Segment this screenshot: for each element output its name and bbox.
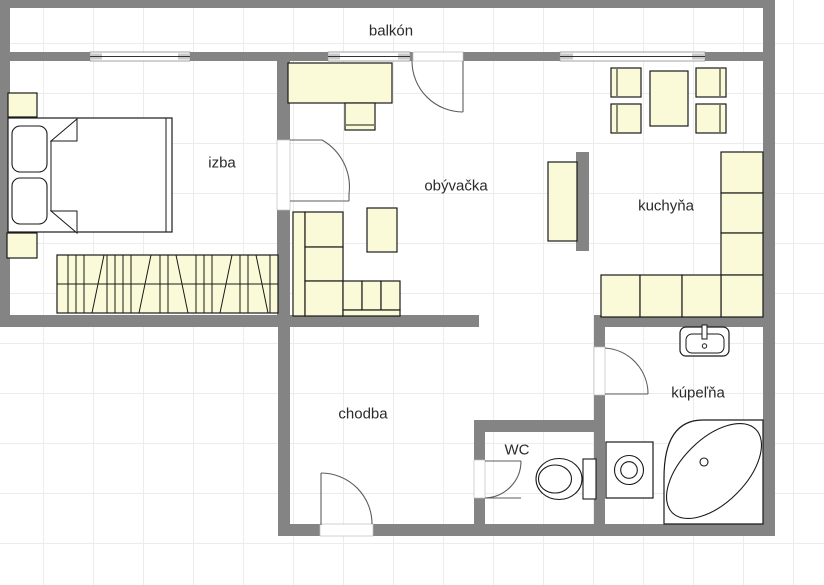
corner-bathtub-icon (650, 407, 779, 536)
floor-plan-canvas (0, 0, 824, 585)
room-label-bedroom: izba (208, 155, 236, 172)
wall-hall-left (278, 327, 290, 536)
room-label-wc: WC (505, 442, 530, 459)
wall-top-2 (190, 52, 328, 61)
dining-chair-icon (696, 68, 726, 97)
desk-icon (288, 63, 392, 103)
kitchen-counter-icon (601, 152, 763, 317)
wall-main-bottom (0, 315, 479, 327)
dining-chair-icon (611, 68, 641, 97)
nightstand-icon (7, 233, 37, 258)
door-swing-icon-entrance (320, 473, 373, 536)
tv-cabinet-icon (548, 162, 577, 241)
wall-bath-left-1 (594, 327, 605, 347)
room-label-hallway: chodba (338, 406, 387, 423)
floor-plan: balkón izba obývačka kuchyňa chodba WC k… (0, 0, 824, 585)
room-label-bathroom: kúpeľňa (671, 385, 725, 402)
wall-tv-partition (576, 152, 589, 251)
washing-machine-icon (606, 442, 653, 498)
wall-wc-top (474, 420, 605, 432)
wall-top-1 (0, 52, 90, 61)
wardrobe-icon (57, 255, 278, 313)
door-swing-icon-balcony (412, 52, 463, 112)
door-swing-icon-bathroom (594, 347, 648, 395)
wall-divider-lower (277, 210, 290, 327)
room-label-balcony: balkón (369, 23, 413, 40)
wall-outer-right (763, 0, 775, 536)
windows (90, 52, 705, 61)
pillow-icon (12, 126, 47, 172)
wall-balcony-outer-top (0, 0, 775, 8)
door-swing-icon-bedroom (277, 140, 349, 210)
wall-top-3 (463, 52, 560, 61)
dining-chair-icon (611, 104, 641, 133)
wall-top-4 (705, 52, 775, 61)
bed-icon (8, 118, 172, 233)
nightstand-icon (8, 93, 37, 117)
wall-wc-left-2 (474, 498, 485, 524)
pillow-icon (12, 178, 47, 224)
toilet-icon (536, 459, 596, 500)
wall-bottom-2 (372, 524, 775, 536)
room-label-living-room: obývačka (424, 178, 487, 195)
armchair-icon (367, 208, 397, 252)
room-label-kitchen: kuchyňa (638, 198, 694, 215)
desk-chair-icon (345, 103, 375, 130)
dining-table-icon (650, 71, 688, 126)
window-icon-bedroom (90, 52, 190, 61)
window-icon-kitchen (560, 52, 705, 61)
dining-chair-icon (696, 104, 726, 133)
window-icon-livingroom (328, 52, 410, 61)
washbasin-icon (680, 325, 729, 356)
bedroom-furniture (7, 93, 278, 313)
wall-bottom-1 (278, 524, 320, 536)
door-swing-icon-wc (474, 460, 521, 498)
wall-wc-left-1 (474, 432, 485, 460)
wall-top-post (410, 52, 413, 61)
kitchen-furniture (601, 68, 763, 317)
